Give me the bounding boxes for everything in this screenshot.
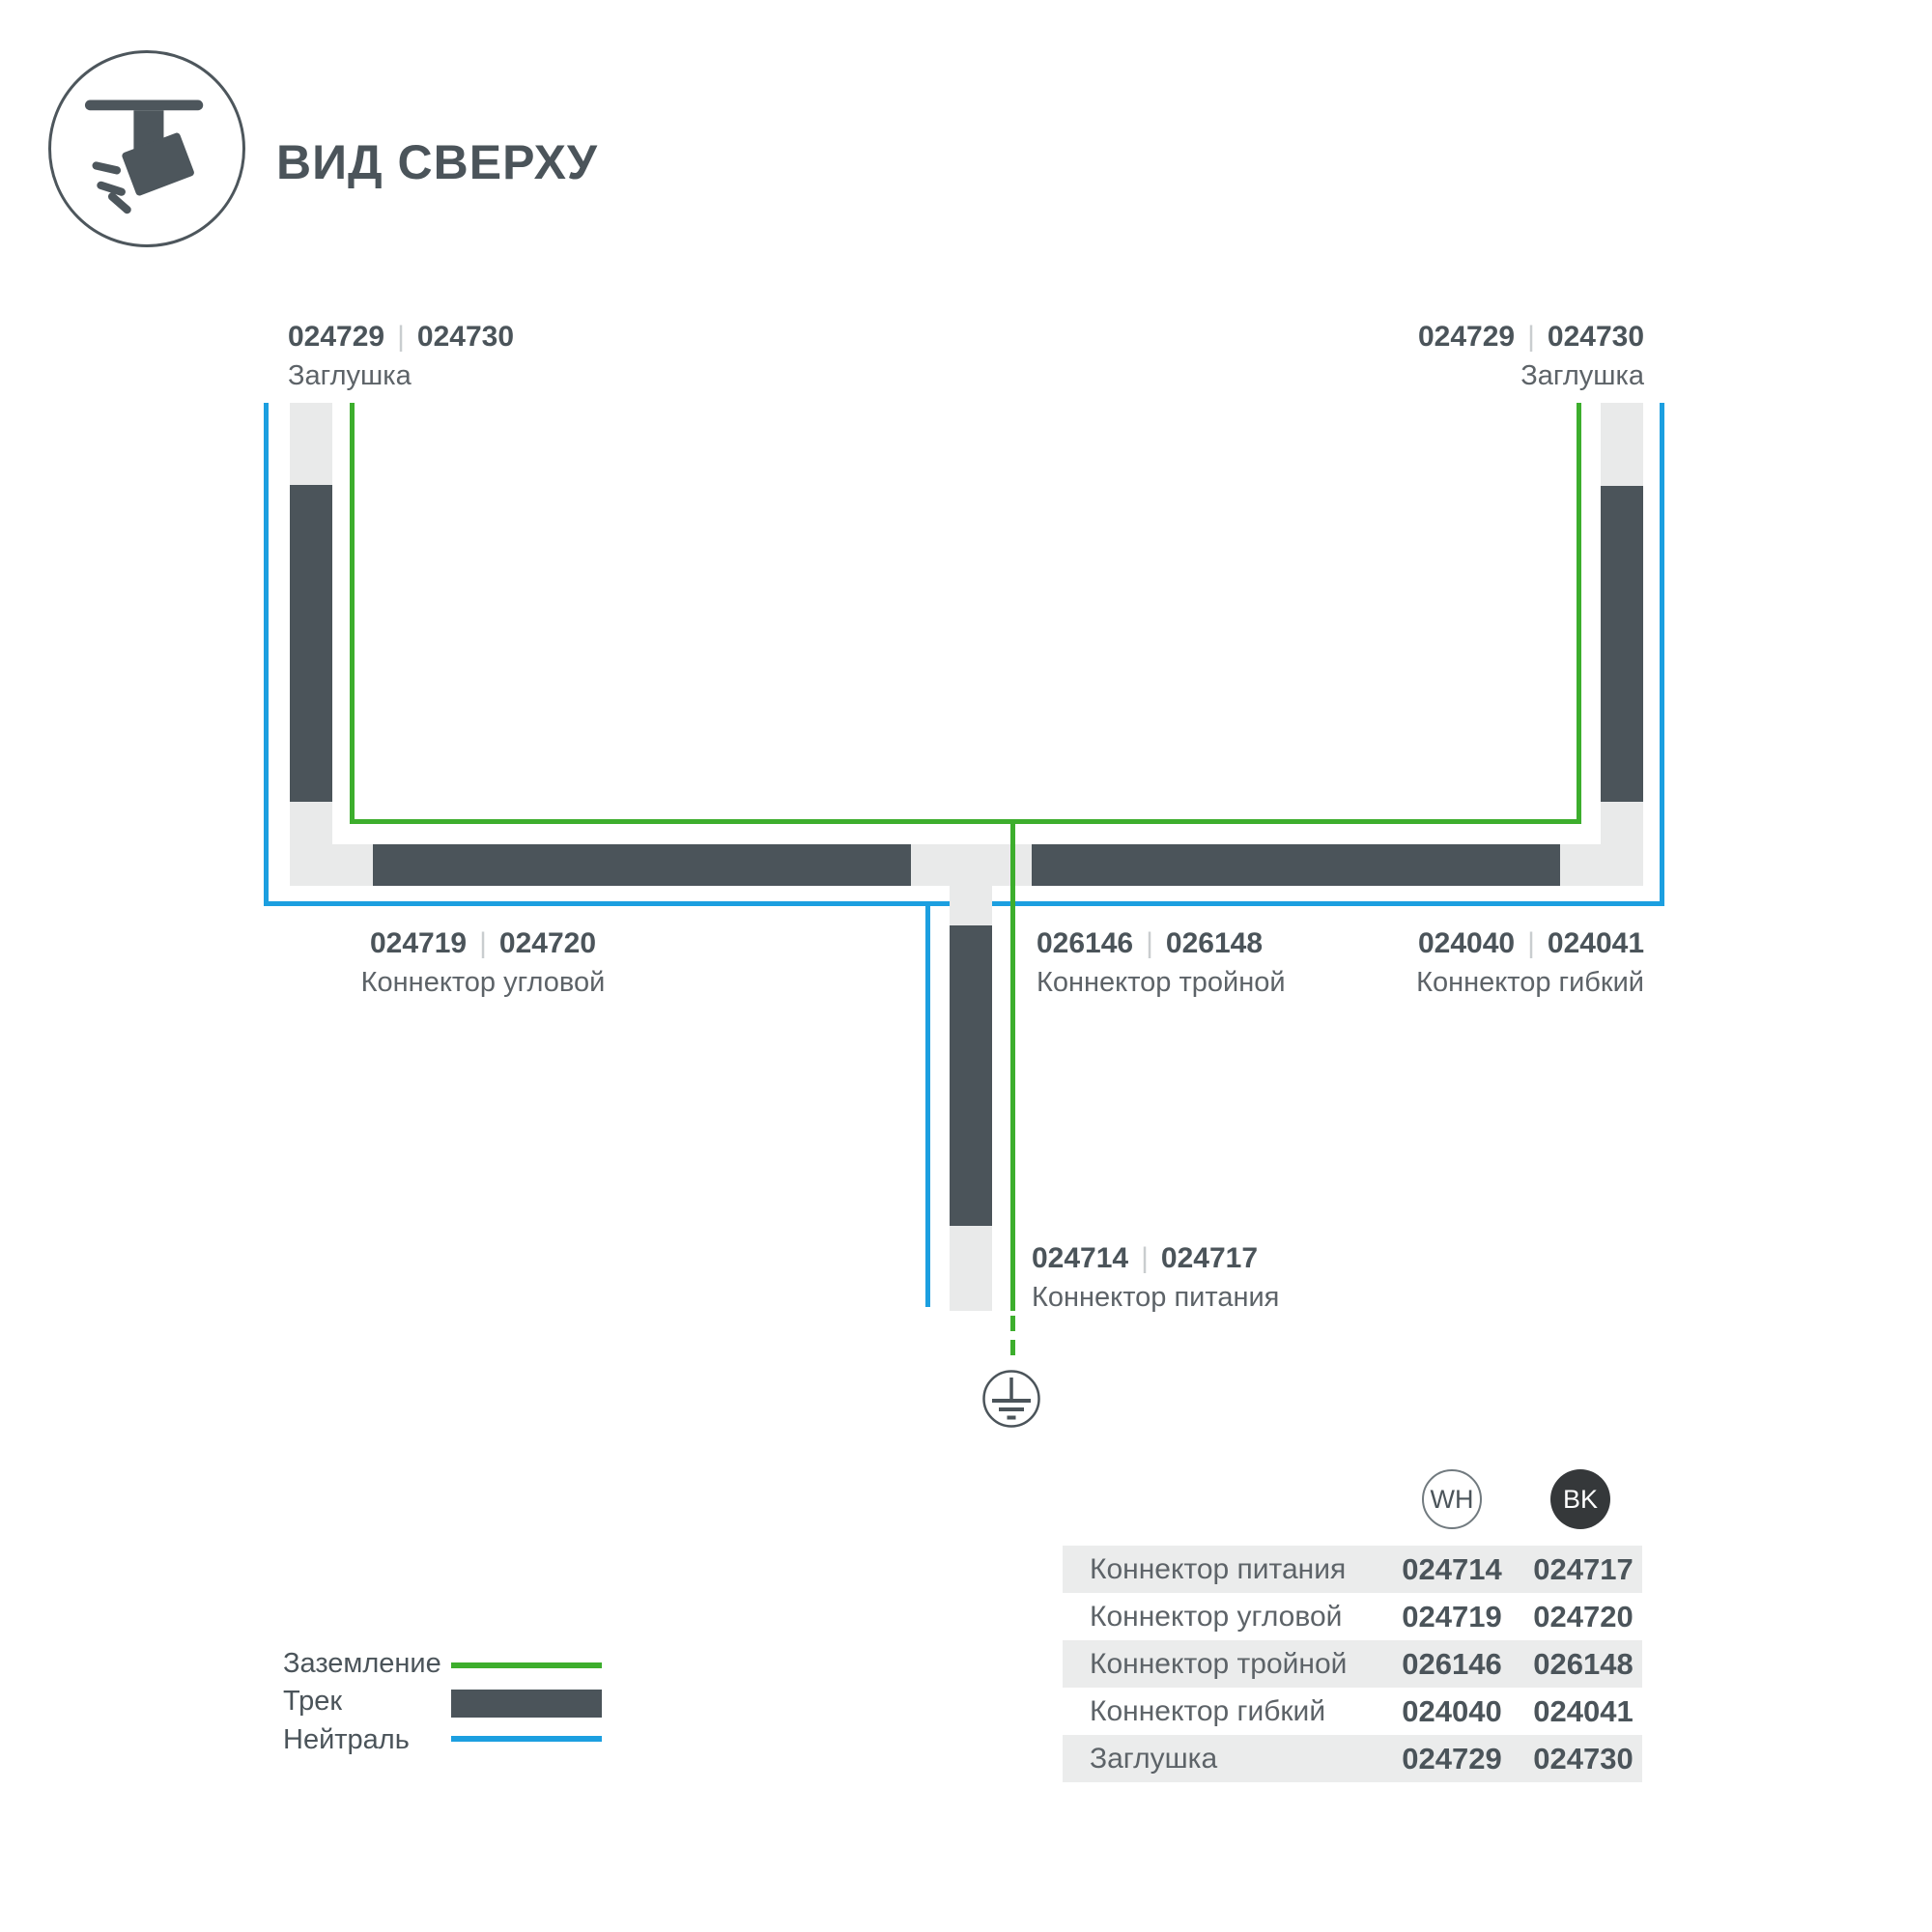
ground-line-right — [1577, 403, 1581, 824]
page-title: ВИД СВЕРХУ — [276, 138, 598, 186]
part-name: Заглушка — [1418, 361, 1644, 390]
bk-article: 024717 — [1506, 1552, 1661, 1587]
label-power-connector: 024714|024717 Коннектор питания — [1032, 1242, 1279, 1312]
separator: | — [467, 927, 499, 959]
table-row: Коннектор тройной 026146 026148 — [1063, 1640, 1642, 1688]
legend-label-track: Трек — [283, 1686, 342, 1717]
legend-label-neutral: Нейтраль — [283, 1724, 410, 1755]
corner-connector-left-v — [290, 802, 332, 886]
part-name: Заглушка — [1090, 1743, 1217, 1776]
parts-table: Коннектор питания 024714 024717 Коннекто… — [1063, 1546, 1642, 1782]
label-endcap-left: 024729|024730 Заглушка — [288, 321, 514, 390]
part-name: Коннектор тройной — [1090, 1648, 1347, 1681]
legend-swatch-track-bar — [451, 1690, 602, 1718]
ground-line-feed-drop — [1010, 819, 1015, 1311]
track-spotlight-icon — [48, 50, 245, 247]
bk-article: 024041 — [1506, 1694, 1661, 1729]
neutral-line-feed-drop — [925, 901, 930, 1307]
flex-connector-right-v — [1601, 802, 1643, 886]
legend-label-ground: Заземление — [283, 1648, 441, 1679]
earth-ground-icon — [981, 1369, 1041, 1429]
neutral-line-right — [1660, 403, 1664, 906]
neutral-line-left — [264, 403, 269, 906]
table-row: Коннектор угловой 024719 024720 — [1063, 1593, 1642, 1640]
table-row: Коннектор питания 024714 024717 — [1063, 1546, 1642, 1593]
bk-article: 024730 — [1506, 1742, 1661, 1776]
ground-line-dashed — [1010, 1316, 1015, 1362]
bk-article: 026148 — [1506, 1647, 1661, 1682]
corner-connector-left-h — [332, 844, 373, 886]
legend-swatch-ground-line — [451, 1662, 602, 1668]
endcap-top-left — [290, 403, 332, 485]
part-name: Коннектор тройной — [1037, 968, 1286, 997]
spotlight-icon-graphic — [51, 53, 242, 244]
part-name: Коннектор гибкий — [1090, 1695, 1325, 1728]
track-segment-right — [1601, 486, 1643, 802]
part-numbers: 026146|026148 — [1037, 927, 1286, 960]
track-segment-middle-left — [373, 844, 911, 886]
column-badge-white: WH — [1422, 1469, 1482, 1529]
separator: | — [1515, 927, 1548, 959]
part-numbers: 024714|024717 — [1032, 1242, 1279, 1275]
column-badge-black: BK — [1550, 1469, 1610, 1529]
part-name: Коннектор питания — [1032, 1283, 1279, 1312]
separator: | — [1133, 927, 1166, 959]
label-corner-connector: 024719|024720 Коннектор угловой — [361, 927, 606, 997]
part-name: Коннектор угловой — [1090, 1601, 1342, 1634]
label-endcap-right: 024729|024730 Заглушка — [1418, 321, 1644, 390]
part-name: Коннектор гибкий — [1416, 968, 1644, 997]
table-row: Коннектор гибкий 024040 024041 — [1063, 1688, 1642, 1735]
endcap-top-right — [1601, 403, 1643, 486]
part-numbers: 024729|024730 — [1418, 321, 1644, 354]
part-numbers: 024719|024720 — [361, 927, 606, 960]
top-view-diagram-page: ВИД СВЕРХУ 024729|024730 Заглушка 024729… — [0, 0, 1932, 1932]
separator: | — [1128, 1242, 1161, 1274]
flex-connector-right-h — [1560, 844, 1601, 886]
legend-swatch-neutral-line — [451, 1736, 602, 1742]
triple-connector-stem — [950, 886, 992, 925]
track-segment-middle-right — [1032, 844, 1560, 886]
part-numbers: 024729|024730 — [288, 321, 514, 354]
label-flex-connector: 024040|024041 Коннектор гибкий — [1416, 927, 1644, 997]
table-row: Заглушка 024729 024730 — [1063, 1735, 1642, 1782]
track-segment-bottom — [950, 925, 992, 1226]
ground-line-left — [350, 403, 355, 824]
ground-line-middle — [350, 819, 1581, 824]
power-connector-cap — [950, 1226, 992, 1311]
part-name: Коннектор питания — [1090, 1553, 1346, 1586]
separator: | — [1515, 321, 1548, 353]
part-name: Заглушка — [288, 361, 514, 390]
separator: | — [384, 321, 417, 353]
track-segment-left — [290, 485, 332, 802]
bk-article: 024720 — [1506, 1600, 1661, 1634]
part-numbers: 024040|024041 — [1416, 927, 1644, 960]
part-name: Коннектор угловой — [361, 968, 606, 997]
label-triple-connector: 026146|026148 Коннектор тройной — [1037, 927, 1286, 997]
